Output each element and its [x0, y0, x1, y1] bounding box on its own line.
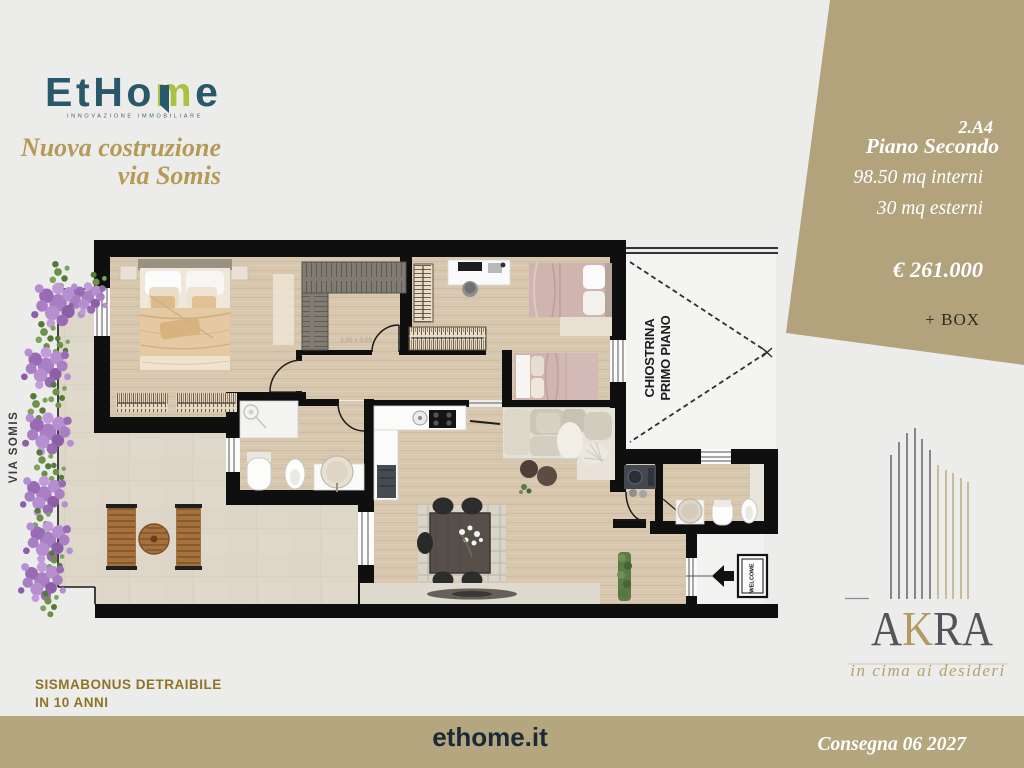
svg-text:EtHome: EtHome	[45, 69, 222, 115]
svg-text:98.50 mq interni: 98.50 mq interni	[854, 167, 983, 188]
svg-text:in cima ai desideri: in cima ai desideri	[850, 661, 1006, 680]
svg-text:INNOVAZIONE IMMOBILIARE: INNOVAZIONE IMMOBILIARE	[67, 114, 203, 120]
svg-text:VIA SOMIS: VIA SOMIS	[8, 411, 20, 484]
svg-text:AKRA: AKRA	[871, 601, 994, 656]
svg-text:3,95 x 3,05: 3,95 x 3,05	[340, 337, 373, 344]
svg-text:Nuova costruzione: Nuova costruzione	[20, 133, 221, 162]
svg-text:CHIOSTRINA: CHIOSTRINA	[642, 318, 657, 398]
svg-text:via Somis: via Somis	[118, 161, 221, 190]
svg-text:30 mq esterni: 30 mq esterni	[876, 198, 983, 219]
svg-text:Piano Secondo: Piano Secondo	[865, 134, 999, 158]
svg-text:+ BOX: + BOX	[925, 310, 980, 329]
svg-text:ethome.it: ethome.it	[432, 722, 548, 752]
svg-text:€ 261.000: € 261.000	[892, 257, 983, 282]
svg-text:Consegna 06 2027: Consegna 06 2027	[818, 734, 968, 755]
svg-text:SISMABONUS DETRAIBILE: SISMABONUS DETRAIBILE	[35, 677, 222, 692]
svg-text:PRIMO PIANO: PRIMO PIANO	[658, 315, 673, 400]
svg-text:WELCOME: WELCOME	[750, 563, 756, 592]
svg-text:IN 10 ANNI: IN 10 ANNI	[35, 695, 109, 710]
